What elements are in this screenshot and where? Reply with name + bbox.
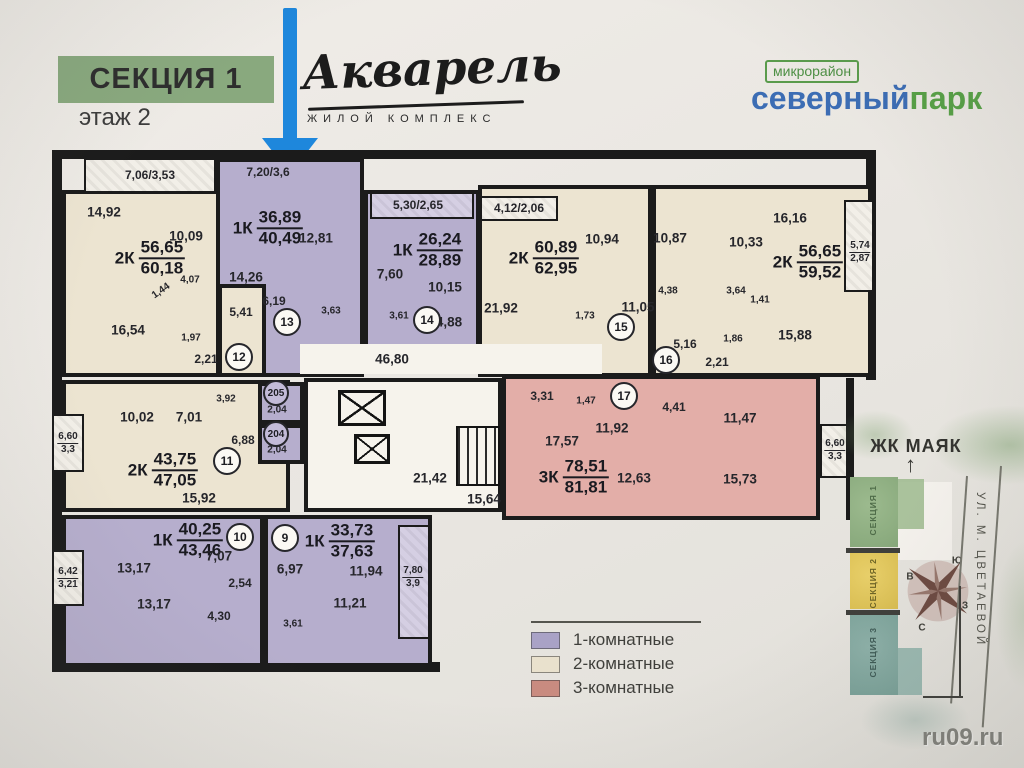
apartment-17-balcony-label: 6,603,3 (824, 438, 845, 462)
compass-east-label: В (906, 572, 913, 583)
elevator-1-icon (338, 390, 386, 426)
room-label: 11,92 (595, 421, 628, 436)
apartment-15-number: 15 (607, 313, 635, 341)
room-label: 2,21 (194, 352, 217, 366)
apartment-11-area-label: 2К 43,7547,05 (128, 450, 198, 489)
room-label: 10,02 (120, 410, 154, 425)
minimap-section-2: СЕКЦИЯ 2 (850, 553, 898, 609)
room-label: 3,64 (726, 286, 745, 297)
room-label: 11,94 (349, 564, 382, 579)
room-label: 2,04 (267, 405, 286, 416)
staircase-icon (456, 426, 500, 486)
minimap-north-arrow-icon: ↑ (905, 452, 916, 478)
apartment-10-number: 10 (226, 523, 254, 551)
minimap-title: ЖК МАЯК (858, 436, 974, 457)
room-label: 4,38 (658, 286, 677, 297)
legend-swatch-1room (531, 632, 560, 649)
apartment-13-area-label: 1К 36,8940,49 (233, 208, 303, 247)
room-label: 3,92 (216, 394, 235, 405)
room-label: 13,17 (117, 561, 151, 576)
legend-swatch-2room (531, 656, 560, 673)
floorplan-sheet: СЕКЦИЯ 1 этаж 2 Акварель жилой комплекс … (0, 0, 1024, 768)
room-label: 5,30/2,65 (393, 198, 443, 212)
room-label: 4,07 (180, 275, 199, 286)
room-label: 5,41 (229, 305, 252, 319)
room-label: 21,92 (484, 301, 518, 316)
apartment-16-balcony-label: 5,742,87 (849, 240, 870, 264)
apartment-11-block (62, 380, 290, 512)
corridor-label: 46,80 (375, 352, 409, 367)
floor-label: этаж 2 (79, 104, 151, 132)
room-label: 1,97 (181, 333, 200, 344)
apartment-12-area-label: 2К 56,6560,18 (115, 238, 185, 277)
room-label: 4,12/2,06 (494, 201, 544, 215)
room-label: 10,33 (729, 235, 763, 250)
room-label: 11,21 (333, 596, 366, 611)
apartment-9-number: 9 (271, 524, 299, 552)
apartment-14-number: 14 (413, 306, 441, 334)
watercolor-blob (995, 540, 1024, 690)
room-label: 6,97 (277, 562, 303, 577)
room-label: 16,54 (111, 323, 145, 338)
room-label: 11,47 (723, 411, 756, 426)
legend-swatch-3room (531, 680, 560, 697)
room-label: 16,16 (773, 211, 807, 226)
section-badge: СЕКЦИЯ 1 (58, 56, 274, 103)
room-label: 15,88 (778, 328, 812, 343)
apartment-17-number: 17 (610, 382, 638, 410)
legend-item-2room: 2-комнатные (531, 654, 674, 674)
room-label: 10,94 (585, 232, 619, 247)
hall-label: 21,42 (413, 471, 447, 486)
room-label: 3,61 (389, 311, 408, 322)
room-label: 10,87 (653, 231, 687, 246)
room-label: 7,06/3,53 (125, 168, 175, 182)
legend-divider (531, 621, 701, 623)
apartment-13-number: 13 (273, 308, 301, 336)
room-label: 1,73 (575, 311, 594, 322)
room-label: 5,16 (673, 337, 696, 351)
minimap-section-1: СЕКЦИЯ 1 (850, 477, 898, 547)
legend-item-1room: 1-комнатные (531, 630, 674, 650)
room-label: 11,05 (621, 300, 654, 315)
room-label: 17,57 (545, 434, 579, 449)
room-label: 7,60 (377, 267, 403, 282)
logo-underline (308, 100, 524, 111)
room-label: 14,92 (87, 205, 121, 220)
room-label: 1,47 (576, 396, 595, 407)
room-label: 6,88 (231, 433, 254, 447)
room-label: 7,01 (176, 410, 202, 425)
room-label: 3,63 (321, 306, 340, 317)
logo-subtitle: жилой комплекс (307, 113, 529, 125)
street-name: УЛ. М. ЦВЕТАЕВОЙ (974, 492, 986, 647)
room-label: 13,17 (137, 597, 171, 612)
watermark: ru09.ru (922, 724, 1003, 752)
elevator-2-icon (354, 434, 390, 464)
room-label: 12,81 (299, 231, 333, 246)
room-label: 10,15 (428, 280, 462, 295)
district-name-green: парк (910, 80, 983, 116)
storage-205-number: 205 (263, 380, 289, 406)
apartment-11-balcony-label: 6,603,3 (57, 431, 78, 455)
apartment-11-number: 11 (213, 447, 241, 475)
apartment-10-balcony-label: 6,423,21 (57, 566, 78, 590)
district-name-blue: северный (751, 80, 910, 116)
room-label: 1,41 (750, 295, 769, 306)
apartment-17-area-label: 3К 78,5181,81 (539, 457, 609, 496)
district-logo: северныйпарк (751, 80, 982, 117)
apartment-16-area-label: 2К 56,6559,52 (773, 242, 843, 281)
complex-logo: Акварель (301, 38, 543, 101)
legend-item-3room: 3-комнатные (531, 678, 674, 698)
minimap-section-1-wing (898, 479, 924, 529)
room-label: 4,30 (207, 609, 230, 623)
room-label: 7,20/3,6 (246, 165, 289, 179)
room-label: 3,61 (283, 619, 302, 630)
apartment-15-area-label: 2К 60,8962,95 (509, 238, 579, 277)
room-label: 14,26 (229, 270, 263, 285)
storage-204-number: 204 (263, 421, 289, 447)
site-boundary-line (959, 586, 961, 698)
site-boundary-line (923, 696, 963, 698)
room-label: 1,86 (723, 334, 742, 345)
room-label: 12,63 (617, 471, 651, 486)
room-label: 3,31 (530, 389, 553, 403)
apartment-9-balcony-label: 7,803,9 (402, 565, 423, 589)
compass-north-label: С (918, 623, 925, 634)
room-label: 7,07 (206, 549, 232, 564)
corridor-top (300, 344, 602, 374)
room-label: 15,92 (182, 491, 216, 506)
apartment-16-number: 16 (652, 346, 680, 374)
room-label: 4,41 (662, 400, 685, 414)
compass-west-label: З (962, 601, 968, 612)
apartment-9-area-label: 1К 33,7337,63 (305, 521, 375, 560)
room-label: 2,21 (705, 355, 728, 369)
minimap-section-3-wing (898, 648, 922, 695)
room-label: 2,54 (228, 576, 251, 590)
room-label: 2,04 (267, 445, 286, 456)
apartment-14-area-label: 1К 26,2428,89 (393, 230, 463, 269)
section-pointer-arrow-icon (283, 8, 297, 140)
room-label: 6,19 (262, 294, 285, 308)
stairs-label: 15,64 (467, 492, 501, 507)
minimap-section-3: СЕКЦИЯ 3 (850, 615, 898, 695)
compass-icon (898, 551, 978, 631)
room-label: 15,73 (723, 472, 757, 487)
apartment-12-number: 12 (225, 343, 253, 371)
